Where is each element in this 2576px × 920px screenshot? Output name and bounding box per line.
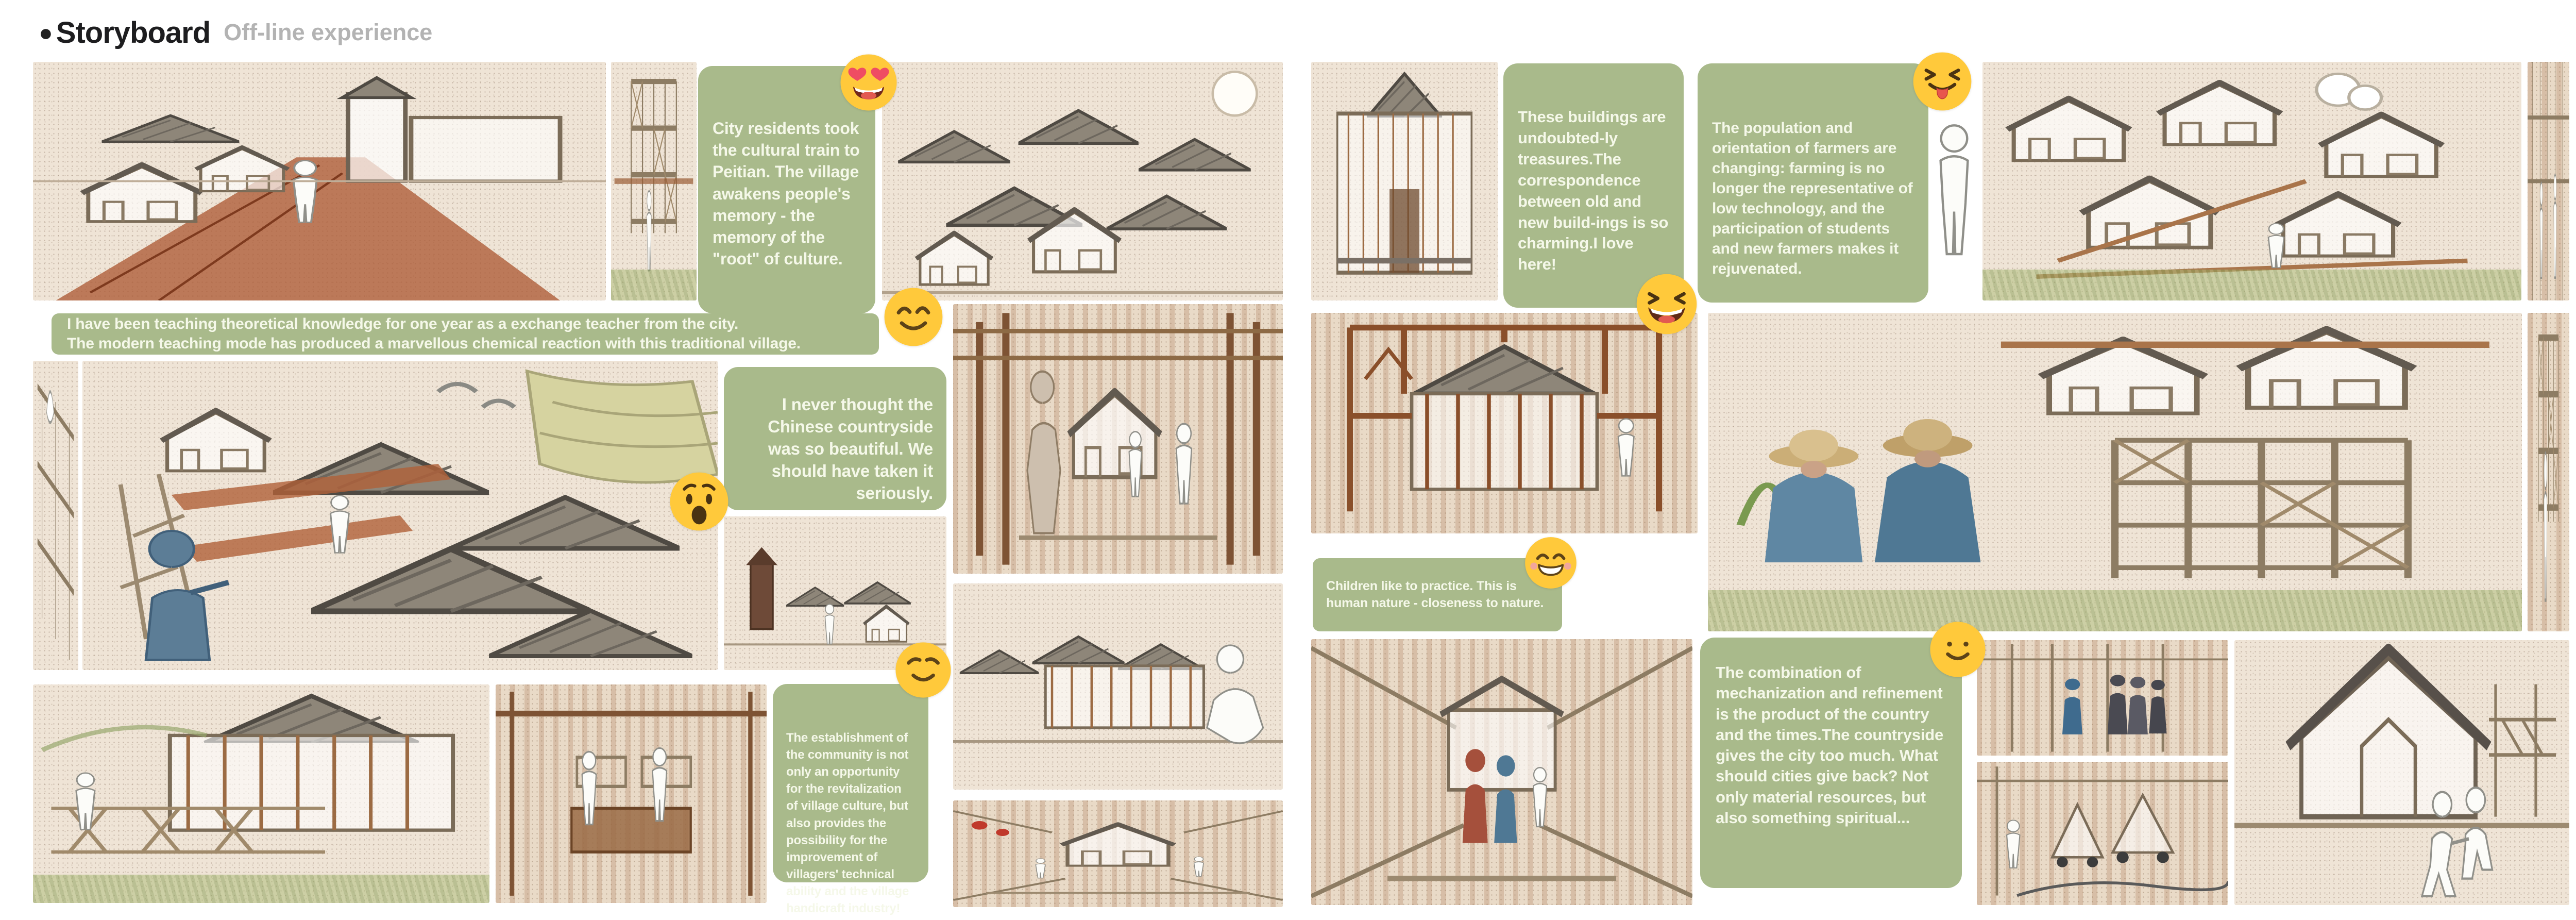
panel-frame-hall — [1311, 313, 1698, 533]
title-bullet-icon: ● — [39, 21, 53, 44]
courtyard-sketch — [953, 800, 1283, 907]
rooftops-sketch — [82, 361, 718, 670]
panel-farmers-structures — [1708, 313, 2522, 631]
caption-community-establishment: The establishment of the community is no… — [773, 684, 928, 882]
caption-children-practice-line1: Children like to practice. This is — [1326, 578, 1549, 595]
greenhouse-campus-sketch — [1982, 62, 2521, 300]
astonished-emoji — [668, 471, 730, 532]
grinning-emoji — [1523, 536, 1578, 590]
squint-tongue-emoji — [1911, 51, 1973, 112]
caption-buildings-treasures-text: These buildings are undoubted-ly treasur… — [1518, 107, 1670, 275]
caption-mechanization-refinement: The combination of mechanization and ref… — [1700, 638, 1962, 888]
caption-exchange-teacher: I have been teaching theoretical knowled… — [52, 313, 879, 355]
heart-eyes-emoji — [839, 53, 899, 112]
panel-rooftop-panorama — [953, 583, 1283, 790]
workshop-carts-sketch — [1977, 762, 2228, 905]
panel-greenhouse-campus — [1982, 62, 2521, 300]
glass-tower-sketch — [2528, 62, 2569, 300]
standing-figure-cutout — [1926, 124, 1982, 320]
rooftop-panorama-sketch — [953, 583, 1283, 790]
panel-truss-strip — [33, 361, 78, 670]
smiling-closed-eyes-emoji — [883, 286, 944, 348]
panel-aerial-old-village — [882, 62, 1283, 300]
caption-never-thought-text: I never thought the Chinese countryside … — [735, 394, 933, 504]
caption-mechanization-refinement-text: The combination of mechanization and ref… — [1716, 662, 1948, 828]
house-children-sketch — [2234, 640, 2569, 905]
caption-exchange-teacher-line2: The modern teaching mode has produced a … — [67, 334, 863, 354]
caption-buildings-treasures: These buildings are undoubted-ly treasur… — [1503, 63, 1684, 308]
panel-scaffold-tower — [611, 62, 697, 300]
farmers-structures-sketch — [1708, 313, 2522, 631]
corridor-sketch — [953, 304, 1283, 574]
panel-rail-village — [33, 62, 606, 300]
slight-smile-emoji — [1928, 620, 1987, 679]
caption-farmers-changing: The population and orientation of farmer… — [1698, 63, 1928, 303]
panel-craft-shop — [496, 684, 767, 903]
panel-courtyard — [953, 800, 1283, 907]
panel-old-facade — [1311, 62, 1498, 300]
caption-farmers-changing-text: The population and orientation of farmer… — [1712, 118, 1916, 279]
laughing-squint-emoji — [1635, 272, 1699, 336]
panel-village-rooftops — [82, 361, 718, 670]
aerial-village-sketch — [882, 62, 1283, 300]
rail-village-sketch — [33, 62, 606, 300]
truss-strip-sketch — [33, 361, 78, 670]
panel-house-children — [2234, 640, 2569, 905]
truss-walkway-sketch — [33, 684, 489, 903]
frame-hall-sketch — [1311, 313, 1698, 533]
panel-visitors-group — [1977, 640, 2228, 756]
caption-never-thought: I never thought the Chinese countryside … — [724, 367, 946, 510]
street-scene-sketch — [1311, 639, 1692, 905]
caption-exchange-teacher-line1: I have been teaching theoretical knowled… — [67, 314, 863, 334]
panel-glass-tower — [2528, 62, 2569, 300]
relieved-smile-emoji — [894, 641, 953, 699]
panel-truss-walkway — [33, 684, 489, 903]
header: ● Storyboard Off-line experience — [39, 14, 432, 51]
panel-workshop-carts — [1977, 762, 2228, 905]
panel-lattice-strip — [2528, 313, 2569, 631]
caption-children-practice-line2: human nature - closeness to nature. — [1326, 595, 1549, 612]
caption-city-residents-text: City residents took the cultural train t… — [713, 118, 862, 270]
visitors-group-sketch — [1977, 640, 2228, 756]
storyboard-poster: ● Storyboard Off-line experience City re… — [0, 0, 2576, 920]
scaffold-sketch — [611, 62, 697, 300]
craft-shop-sketch — [496, 684, 767, 903]
lattice-strip-sketch — [2528, 313, 2569, 631]
page-subtitle: Off-line experience — [224, 19, 432, 46]
caption-community-establishment-text: The establishment of the community is no… — [786, 729, 916, 917]
old-facade-sketch — [1311, 62, 1498, 300]
panel-street-scene — [1311, 639, 1692, 905]
panel-timber-corridor — [953, 304, 1283, 574]
page-title: Storyboard — [56, 15, 210, 50]
